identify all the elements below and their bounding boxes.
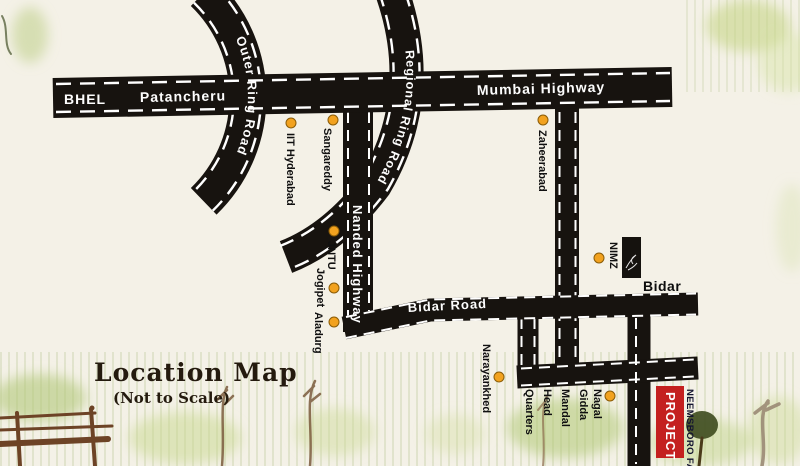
jntu-label: JNTU (325, 241, 337, 270)
marker-aladurg (329, 317, 339, 327)
nanded-highway-label: Nanded Highway (350, 205, 365, 324)
bidar-city-label: Bidar (643, 278, 681, 294)
marker-jntu (329, 226, 339, 236)
mandal-hq-word-mandal: Mandal (559, 389, 571, 427)
mandal-hq-word-gidda: Gidda (577, 389, 589, 421)
bench-sketch (0, 406, 112, 466)
aladurg-label: Aladurg (312, 312, 324, 354)
mandal-hq-word-quarters: Quarters (523, 389, 535, 435)
sangareddy-label: Sangareddy (321, 128, 333, 192)
marker-jogipet (329, 283, 339, 293)
marker-narayankhed (494, 372, 504, 382)
marker-mandal-hq (605, 391, 615, 401)
zaheerabad-label: Zaheerabad (536, 130, 548, 192)
mandal-hq-word-nagal: Nagal (591, 389, 603, 419)
zaheerabad-vertical-road (560, 105, 576, 377)
marker-nimz (594, 253, 604, 263)
narayankhed-label: Narayankhed (480, 344, 492, 413)
mumbai-highway-label: Mumbai Highway (477, 79, 606, 98)
project-lower-road (517, 360, 698, 386)
nimz-sign (622, 237, 641, 278)
nimz-label: NIMZ (607, 242, 619, 269)
marker-sangareddy (328, 115, 338, 125)
project-box: PROJECT (656, 386, 684, 460)
map-canvas: BHEL Patancheru Mumbai Highway Outer Rin… (0, 0, 800, 466)
patancheru-label: Patancheru (140, 87, 227, 105)
map-title: Location Map (94, 358, 298, 387)
marker-zaheerabad (538, 115, 548, 125)
bhel-label: BHEL (64, 91, 106, 107)
project-name-label: NEEMSBORO FARM (684, 389, 695, 466)
iit-hyderabad-label: IIT Hyderabad (284, 133, 296, 206)
location-map: BHEL Patancheru Mumbai Highway Outer Rin… (0, 0, 800, 466)
mandal-hq-word-head: Head (541, 389, 553, 416)
project-label: PROJECT (663, 392, 678, 460)
marker-iit-hyderabad (286, 118, 296, 128)
map-scale-note: (Not to Scale) (113, 389, 230, 407)
jogipet-label: Jogipet (314, 268, 326, 307)
